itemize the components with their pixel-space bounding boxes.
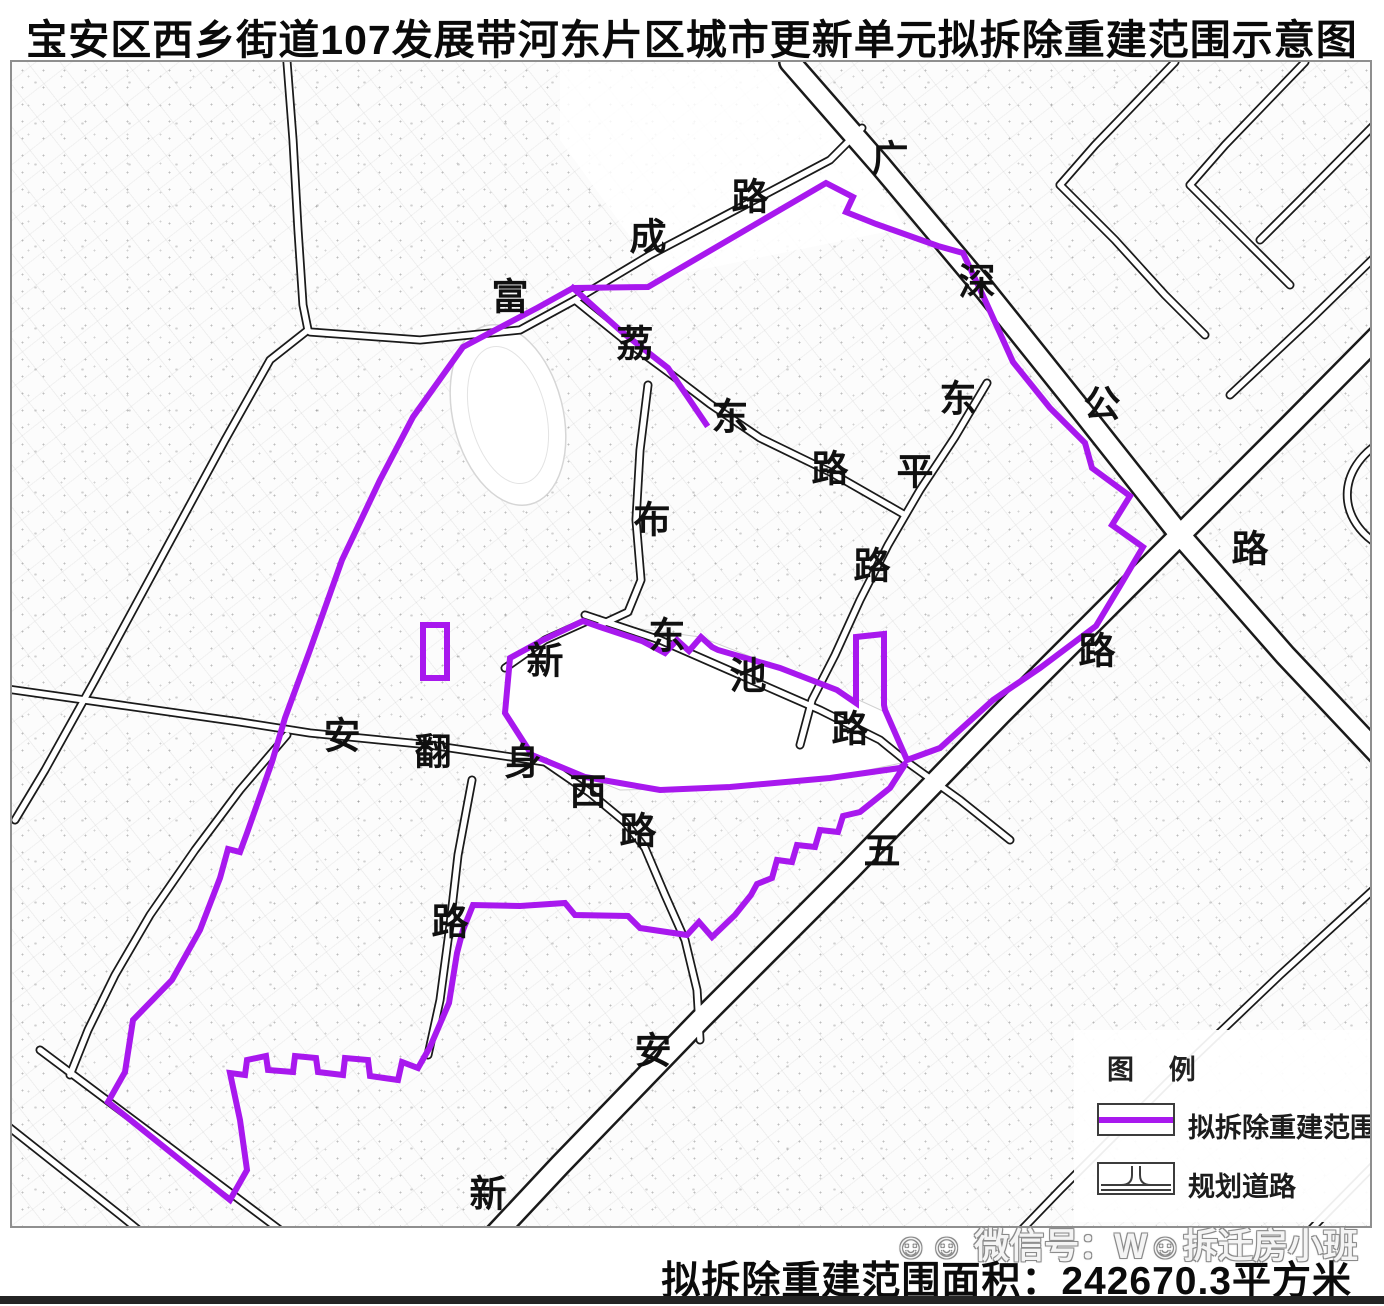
legend-box: 图 例 拟拆除重建范围 规划道路 bbox=[1074, 1030, 1370, 1222]
bottom-bar bbox=[0, 1296, 1384, 1304]
open-space-patches bbox=[432, 64, 906, 790]
legend-boundary-symbol bbox=[1097, 1103, 1175, 1136]
legend-boundary-label: 拟拆除重建范围 bbox=[1188, 1106, 1372, 1145]
map-canvas: 广深公路路成富荔东路布东平路新东池路安翻身西路路五安新路 图 例 拟拆除重建范围… bbox=[10, 60, 1372, 1228]
page-title: 宝安区西乡街道107发展带河东片区城市更新单元拟拆除重建范围示意图 bbox=[0, 6, 1384, 66]
planned-road-icon bbox=[1099, 1164, 1173, 1193]
legend-title: 图 例 bbox=[1107, 1048, 1210, 1087]
boundary-line-icon bbox=[1099, 1117, 1173, 1123]
legend-road-label: 规划道路 bbox=[1188, 1165, 1296, 1204]
legend-road-symbol bbox=[1097, 1162, 1175, 1195]
boundary-small-parcel bbox=[423, 625, 447, 678]
